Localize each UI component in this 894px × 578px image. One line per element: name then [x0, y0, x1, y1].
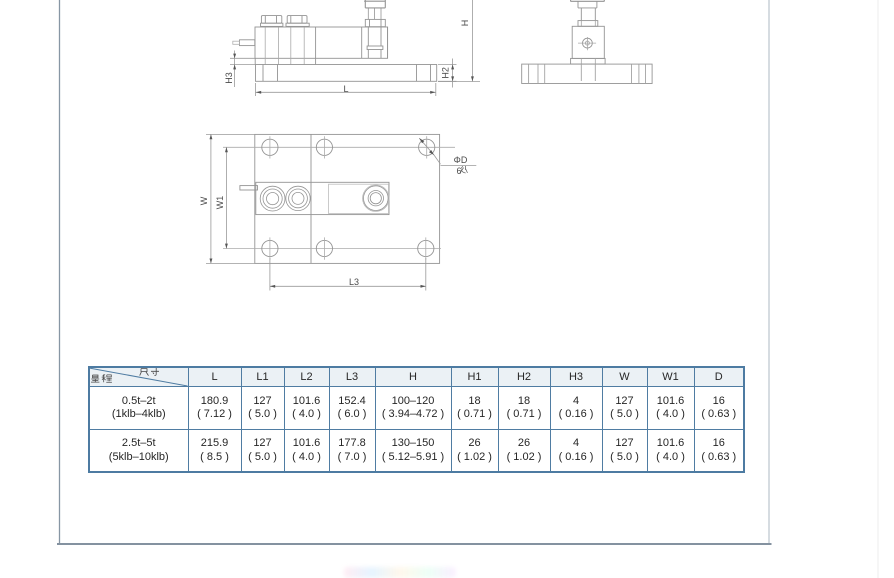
svg-text:L: L	[343, 84, 348, 94]
svg-text:H2: H2	[440, 67, 450, 79]
svg-text:W1: W1	[215, 196, 225, 210]
svg-text:H3: H3	[224, 72, 234, 84]
svg-text:ΦD: ΦD	[454, 155, 468, 165]
svg-text:W: W	[199, 196, 209, 205]
svg-text:L3: L3	[349, 277, 359, 287]
svg-text:6: 6	[457, 166, 462, 176]
svg-text:H: H	[460, 20, 470, 27]
